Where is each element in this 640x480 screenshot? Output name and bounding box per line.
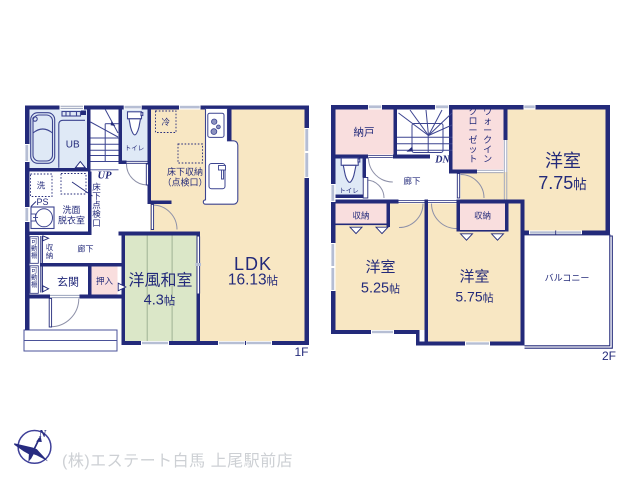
svg-text:トイレ: トイレ [339, 188, 359, 195]
svg-text:(株)エステート白馬 上尾駅前店: (株)エステート白馬 上尾駅前店 [62, 452, 293, 470]
svg-text:（点検口）: （点検口） [162, 177, 207, 188]
svg-text:バルコニー: バルコニー [545, 273, 590, 283]
svg-text:廊下: 廊下 [78, 244, 94, 254]
svg-text:洋室: 洋室 [545, 151, 581, 171]
svg-text:洗: 洗 [37, 181, 46, 191]
svg-text:UB: UB [66, 140, 80, 151]
svg-text:UP: UP [98, 171, 113, 182]
svg-text:5.25帖: 5.25帖 [361, 281, 400, 297]
svg-text:口: 口 [92, 218, 101, 228]
svg-text:PS: PS [36, 197, 48, 207]
svg-text:動: 動 [31, 244, 38, 253]
svg-text:押入: 押入 [96, 276, 114, 286]
svg-text:脱衣室: 脱衣室 [58, 215, 85, 226]
svg-text:イ: イ [483, 145, 492, 155]
svg-text:収納: 収納 [352, 211, 369, 221]
svg-text:洋室: 洋室 [459, 269, 489, 286]
svg-text:棚: 棚 [31, 280, 38, 289]
svg-text:洋風和室: 洋風和室 [128, 272, 192, 290]
svg-text:1F: 1F [294, 345, 308, 359]
svg-text:ト: ト [468, 154, 477, 164]
svg-text:DN: DN [434, 155, 450, 166]
svg-text:洋室: 洋室 [365, 259, 395, 276]
svg-text:納: 納 [46, 250, 54, 260]
svg-text:ン: ン [483, 154, 492, 164]
svg-text:ッ: ッ [468, 145, 477, 155]
svg-text:N: N [38, 429, 47, 440]
svg-text:ォ: ォ [483, 116, 492, 126]
svg-text:玄関: 玄関 [57, 275, 79, 289]
svg-text:4.3帖: 4.3帖 [144, 293, 176, 309]
svg-text:ウ: ウ [483, 107, 492, 117]
svg-text:ー: ー [483, 126, 492, 136]
svg-text:洗面: 洗面 [62, 204, 80, 215]
svg-text:棚: 棚 [31, 251, 38, 260]
svg-text:動: 動 [31, 273, 38, 282]
svg-text:床下収納: 床下収納 [167, 166, 203, 177]
svg-text:可: 可 [31, 238, 38, 246]
svg-text:可: 可 [31, 267, 38, 275]
svg-text:納戸: 納戸 [354, 126, 375, 139]
svg-text:ク: ク [468, 107, 477, 117]
svg-text:ゼ: ゼ [468, 134, 477, 145]
svg-text:ー: ー [468, 126, 477, 136]
svg-text:2F: 2F [602, 349, 616, 363]
svg-text:廊下: 廊下 [403, 176, 421, 186]
svg-text:ク: ク [483, 135, 492, 145]
svg-text:収納: 収納 [474, 211, 491, 221]
svg-text:ロ: ロ [468, 116, 477, 126]
svg-text:冷: 冷 [162, 117, 171, 127]
svg-text:トイレ: トイレ [125, 145, 145, 152]
